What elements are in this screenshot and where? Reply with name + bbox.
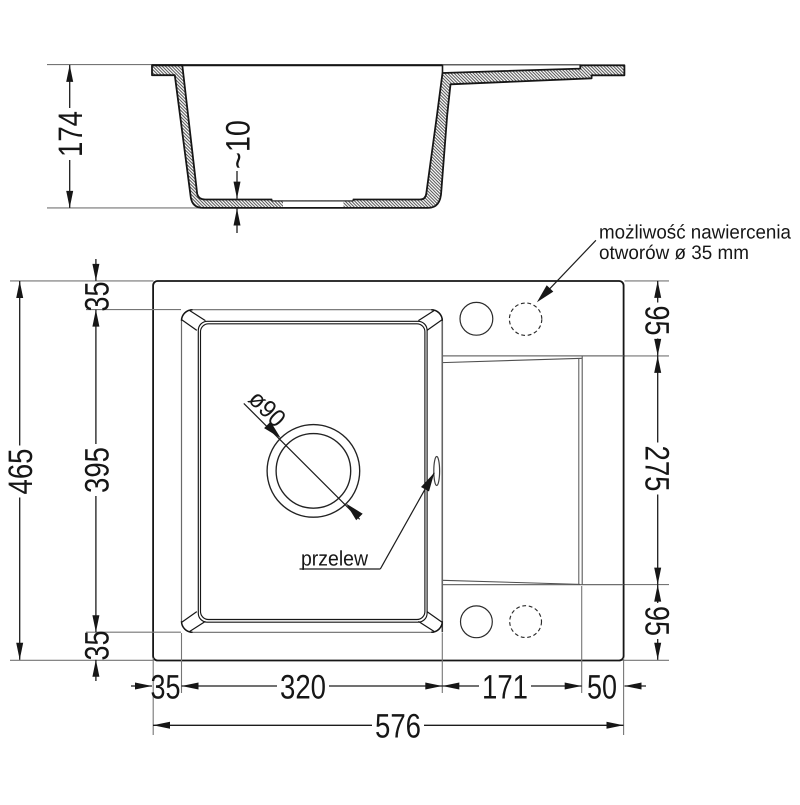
svg-text:320: 320 (280, 668, 326, 706)
svg-text:576: 576 (375, 708, 421, 746)
svg-text:275: 275 (637, 446, 675, 492)
svg-text:możliwość nawiercenia: możliwość nawiercenia (599, 222, 791, 244)
svg-text:otworów ø 35 mm: otworów ø 35 mm (599, 242, 749, 264)
svg-text:przelew: przelew (301, 548, 369, 571)
svg-text:465: 465 (2, 449, 40, 495)
svg-text:171: 171 (482, 668, 528, 706)
svg-text:95: 95 (637, 306, 675, 336)
svg-text:50: 50 (587, 668, 617, 706)
svg-text:95: 95 (637, 606, 675, 636)
svg-text:~10: ~10 (219, 120, 257, 169)
svg-text:395: 395 (78, 447, 116, 493)
svg-text:35: 35 (151, 668, 181, 706)
svg-text:35: 35 (78, 282, 116, 312)
svg-text:174: 174 (52, 111, 90, 157)
svg-text:35: 35 (78, 631, 116, 661)
